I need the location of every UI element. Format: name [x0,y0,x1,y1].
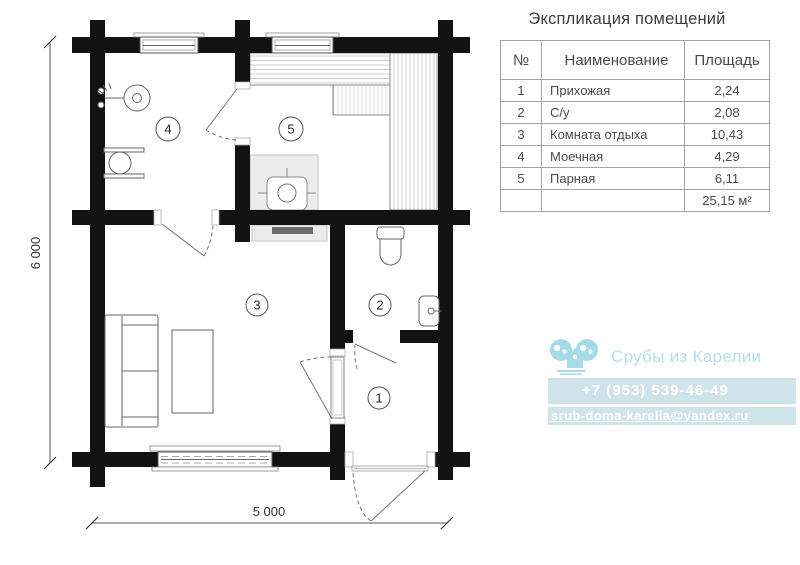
brand-email-link[interactable]: srub-doma-karelia@yandex.ru [548,407,796,425]
explication-table: № Наименование Площадь 1 Прихожая 2,24 2… [500,40,770,212]
door-washroom-lounge [154,210,219,256]
sofa [105,315,158,427]
door-bathroom-hallway [355,344,396,369]
header-area: Площадь [685,41,770,80]
window-lounge [150,446,280,471]
svg-text:2: 2 [376,298,383,313]
brand-block: Срубы из Карелии +7 (953) 539-46-49 srub… [548,337,796,425]
stove-firebox-door [272,227,313,234]
table-total-row: 25,15 м² [501,190,770,212]
sauna-bench-top [250,53,390,85]
door-lounge-hallway [300,349,345,424]
table-row: 2 С/у 2,08 [501,102,770,124]
room-label-5: 5 [279,117,303,141]
brand-logo-icon [548,337,602,377]
stove-chimney [278,184,296,202]
brand-phone: +7 (953) 539-46-49 [548,378,796,404]
washbasin [104,148,144,178]
window-washroom [134,33,204,53]
dim-vertical-label: 6 000 [28,237,43,270]
brand-name: Срубы из Карелии [611,347,761,367]
svg-text:1: 1 [375,391,382,406]
dimension-horizontal: 5 000 [86,504,453,529]
table-header-row: № Наименование Площадь [501,41,770,80]
door-entrance [345,452,435,521]
sauna-bench-step [333,85,390,115]
table-row: 5 Парная 6,11 [501,168,770,190]
svg-text:5: 5 [287,122,294,137]
room-label-3: 3 [246,294,268,316]
table-row: 3 Комната отдыха 10,43 [501,124,770,146]
window-steamroom [266,33,339,53]
room-label-4: 4 [156,117,180,141]
door-washroom-steamroom [206,82,250,145]
sauna-stove [250,155,327,241]
floor-plan: 4 5 3 2 1 6 000 5 000 [0,0,500,565]
toilet [377,227,404,265]
explication-title: Экспликация помещений [498,10,756,29]
coffee-table [172,330,213,413]
svg-text:3: 3 [253,298,260,313]
room-label-2: 2 [369,294,391,316]
room-label-1: 1 [368,387,390,409]
table-row: 4 Моечная 4,29 [501,146,770,168]
total-area: 25,15 м² [685,190,770,212]
dim-horizontal-label: 5 000 [253,504,286,519]
dimension-vertical: 6 000 [28,36,56,469]
svg-text:4: 4 [164,122,171,137]
header-num: № [501,41,542,80]
sink [419,296,442,326]
shower [98,83,150,111]
sauna-bench-right [390,53,437,210]
page: 4 5 3 2 1 6 000 5 000 [0,0,800,565]
table-row: 1 Прихожая 2,24 [501,80,770,102]
header-name: Наименование [542,41,685,80]
